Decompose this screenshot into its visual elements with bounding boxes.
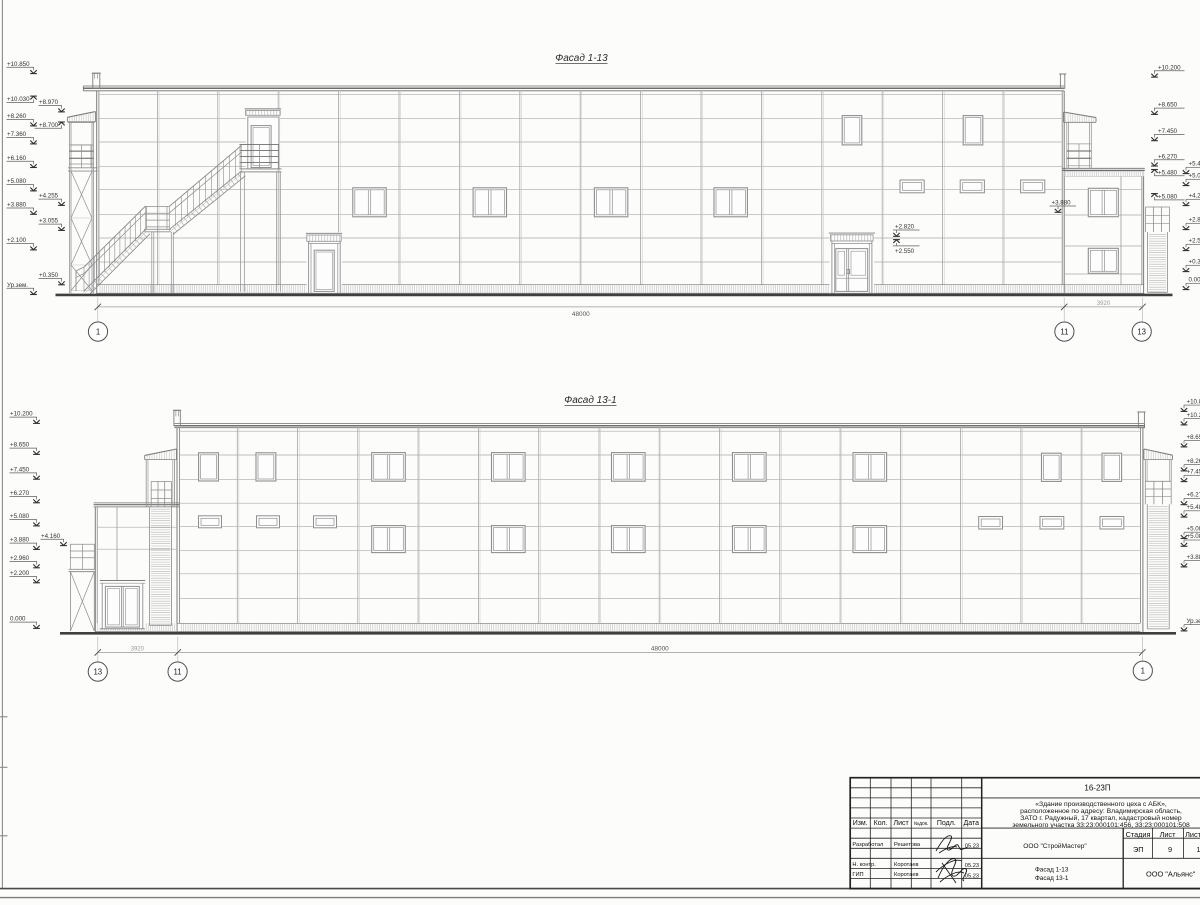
svg-text:+0.350: +0.350	[39, 272, 59, 279]
svg-text:10: 10	[1196, 845, 1200, 854]
svg-text:Лист: Лист	[1160, 830, 1177, 839]
svg-text:Изм.: Изм.	[853, 820, 868, 827]
svg-text:ЗАТО г. Радужный, 17 квартал,: ЗАТО г. Радужный, 17 квартал, кадастровы…	[1020, 814, 1182, 822]
svg-text:3920: 3920	[1097, 301, 1111, 307]
svg-text:+5.480: +5.480	[1189, 161, 1200, 168]
svg-text:ГИП: ГИП	[852, 872, 863, 878]
svg-text:+2.960: +2.960	[10, 555, 30, 562]
svg-text:Ур.зем.: Ур.зем.	[7, 282, 28, 289]
svg-text:05.23: 05.23	[965, 873, 979, 879]
svg-text:+4.255: +4.255	[39, 193, 59, 200]
svg-text:+7.360: +7.360	[7, 131, 27, 138]
svg-text:+3.880: +3.880	[1187, 554, 1200, 561]
svg-text:Фасад 1-13: Фасад 1-13	[1035, 867, 1069, 874]
svg-text:Ур.зем.: Ур.зем.	[1187, 618, 1200, 625]
svg-text:ООО "Альянс": ООО "Альянс"	[1146, 870, 1196, 879]
svg-text:+6.160: +6.160	[7, 155, 27, 162]
svg-text:+3.055: +3.055	[39, 218, 59, 225]
svg-text:48000: 48000	[651, 646, 669, 653]
svg-text:+5.080: +5.080	[1158, 194, 1178, 201]
svg-text:+8.260: +8.260	[7, 113, 27, 120]
svg-text:13: 13	[1137, 327, 1146, 336]
svg-text:+8.650: +8.650	[1158, 102, 1178, 109]
svg-text:+2.820: +2.820	[1189, 217, 1200, 224]
svg-text:11: 11	[174, 667, 182, 676]
svg-text:0.000: 0.000	[1189, 277, 1200, 284]
svg-text:0.000: 0.000	[10, 616, 26, 623]
svg-text:+7.450: +7.450	[1158, 128, 1178, 135]
svg-text:Фасад 1-13: Фасад 1-13	[555, 53, 608, 64]
svg-text:+2.200: +2.200	[10, 570, 30, 577]
svg-text:11: 11	[1060, 327, 1068, 336]
svg-text:+2.550: +2.550	[1189, 238, 1200, 245]
svg-text:Стадия: Стадия	[1126, 830, 1151, 839]
svg-text:+8.700: +8.700	[39, 122, 59, 129]
svg-text:+4.160: +4.160	[41, 533, 61, 540]
svg-text:+5.080: +5.080	[1187, 525, 1200, 532]
svg-text:3920: 3920	[131, 646, 145, 652]
svg-text:+7.450: +7.450	[1187, 469, 1200, 476]
svg-text:Фасад 13-1: Фасад 13-1	[564, 395, 616, 406]
svg-text:+8.260: +8.260	[1187, 458, 1200, 465]
svg-text:1: 1	[96, 327, 100, 336]
svg-text:земельного участка 33:23:00010: земельного участка 33:23:000101:456, 33:…	[1012, 822, 1190, 829]
svg-text:Коротаев: Коротаев	[894, 872, 919, 878]
svg-text:+6.270: +6.270	[10, 490, 30, 497]
svg-text:16-23П: 16-23П	[1084, 783, 1110, 792]
svg-text:+5.480: +5.480	[1158, 169, 1178, 176]
svg-text:Дата: Дата	[964, 820, 980, 827]
svg-text:+3.880: +3.880	[10, 537, 30, 544]
svg-text:ООО "СтройМастер": ООО "СтройМастер"	[1023, 842, 1087, 850]
svg-text:+5.480: +5.480	[1187, 504, 1200, 511]
svg-text:+2.550: +2.550	[895, 248, 915, 255]
svg-text:13: 13	[93, 667, 102, 676]
svg-text:№док.: №док.	[914, 821, 929, 827]
svg-text:+10.200: +10.200	[1187, 412, 1200, 419]
svg-text:+5.080: +5.080	[10, 513, 30, 520]
svg-text:Н. контр.: Н. контр.	[852, 862, 876, 868]
svg-text:48000: 48000	[572, 311, 590, 318]
svg-text:расположенное по адресу: Влади: расположенное по адресу: Владимирская об…	[1020, 807, 1182, 815]
svg-text:+0.350: +0.350	[1189, 259, 1200, 266]
svg-text:+10.200: +10.200	[10, 411, 33, 418]
svg-text:05.23: 05.23	[965, 843, 979, 849]
svg-text:+10.850: +10.850	[1187, 398, 1200, 405]
svg-text:+7.450: +7.450	[10, 467, 30, 474]
svg-text:+4.255: +4.255	[1189, 193, 1200, 200]
svg-text:+6.270: +6.270	[1158, 153, 1178, 160]
svg-text:+8.650: +8.650	[10, 442, 30, 449]
svg-text:«Здание производственного цеха: «Здание производственного цеха с АБК»,	[1035, 801, 1167, 808]
svg-text:+10.200: +10.200	[1158, 64, 1181, 71]
svg-text:1: 1	[1141, 666, 1145, 675]
svg-text:Решетова: Решетова	[894, 842, 921, 848]
svg-text:+5.080: +5.080	[7, 178, 27, 185]
svg-text:+2.820: +2.820	[895, 223, 915, 230]
svg-text:Листов: Листов	[1185, 830, 1200, 839]
svg-text:+10.850: +10.850	[7, 61, 30, 68]
svg-text:Лист: Лист	[893, 820, 909, 827]
svg-text:Коротаев: Коротаев	[894, 862, 919, 868]
svg-text:Подл.: Подл.	[937, 820, 956, 827]
svg-text:+8.970: +8.970	[39, 99, 59, 106]
svg-text:05.23: 05.23	[965, 863, 979, 869]
svg-text:+5.080: +5.080	[1187, 533, 1200, 540]
svg-text:+8.650: +8.650	[1187, 434, 1200, 441]
svg-text:Разработал: Разработал	[852, 842, 883, 848]
svg-text:+3.880: +3.880	[7, 202, 27, 209]
svg-text:+10.030: +10.030	[7, 96, 30, 103]
svg-text:+5.080: +5.080	[1189, 173, 1200, 180]
svg-text:+3.880: +3.880	[1052, 199, 1072, 206]
svg-text:9: 9	[1168, 845, 1172, 854]
svg-text:Фасад 13-1: Фасад 13-1	[1035, 875, 1069, 882]
svg-text:+2.100: +2.100	[7, 237, 27, 244]
svg-text:ЭП: ЭП	[1133, 845, 1144, 854]
svg-text:Кол.: Кол.	[874, 820, 888, 827]
svg-text:+6.270: +6.270	[1187, 492, 1200, 499]
